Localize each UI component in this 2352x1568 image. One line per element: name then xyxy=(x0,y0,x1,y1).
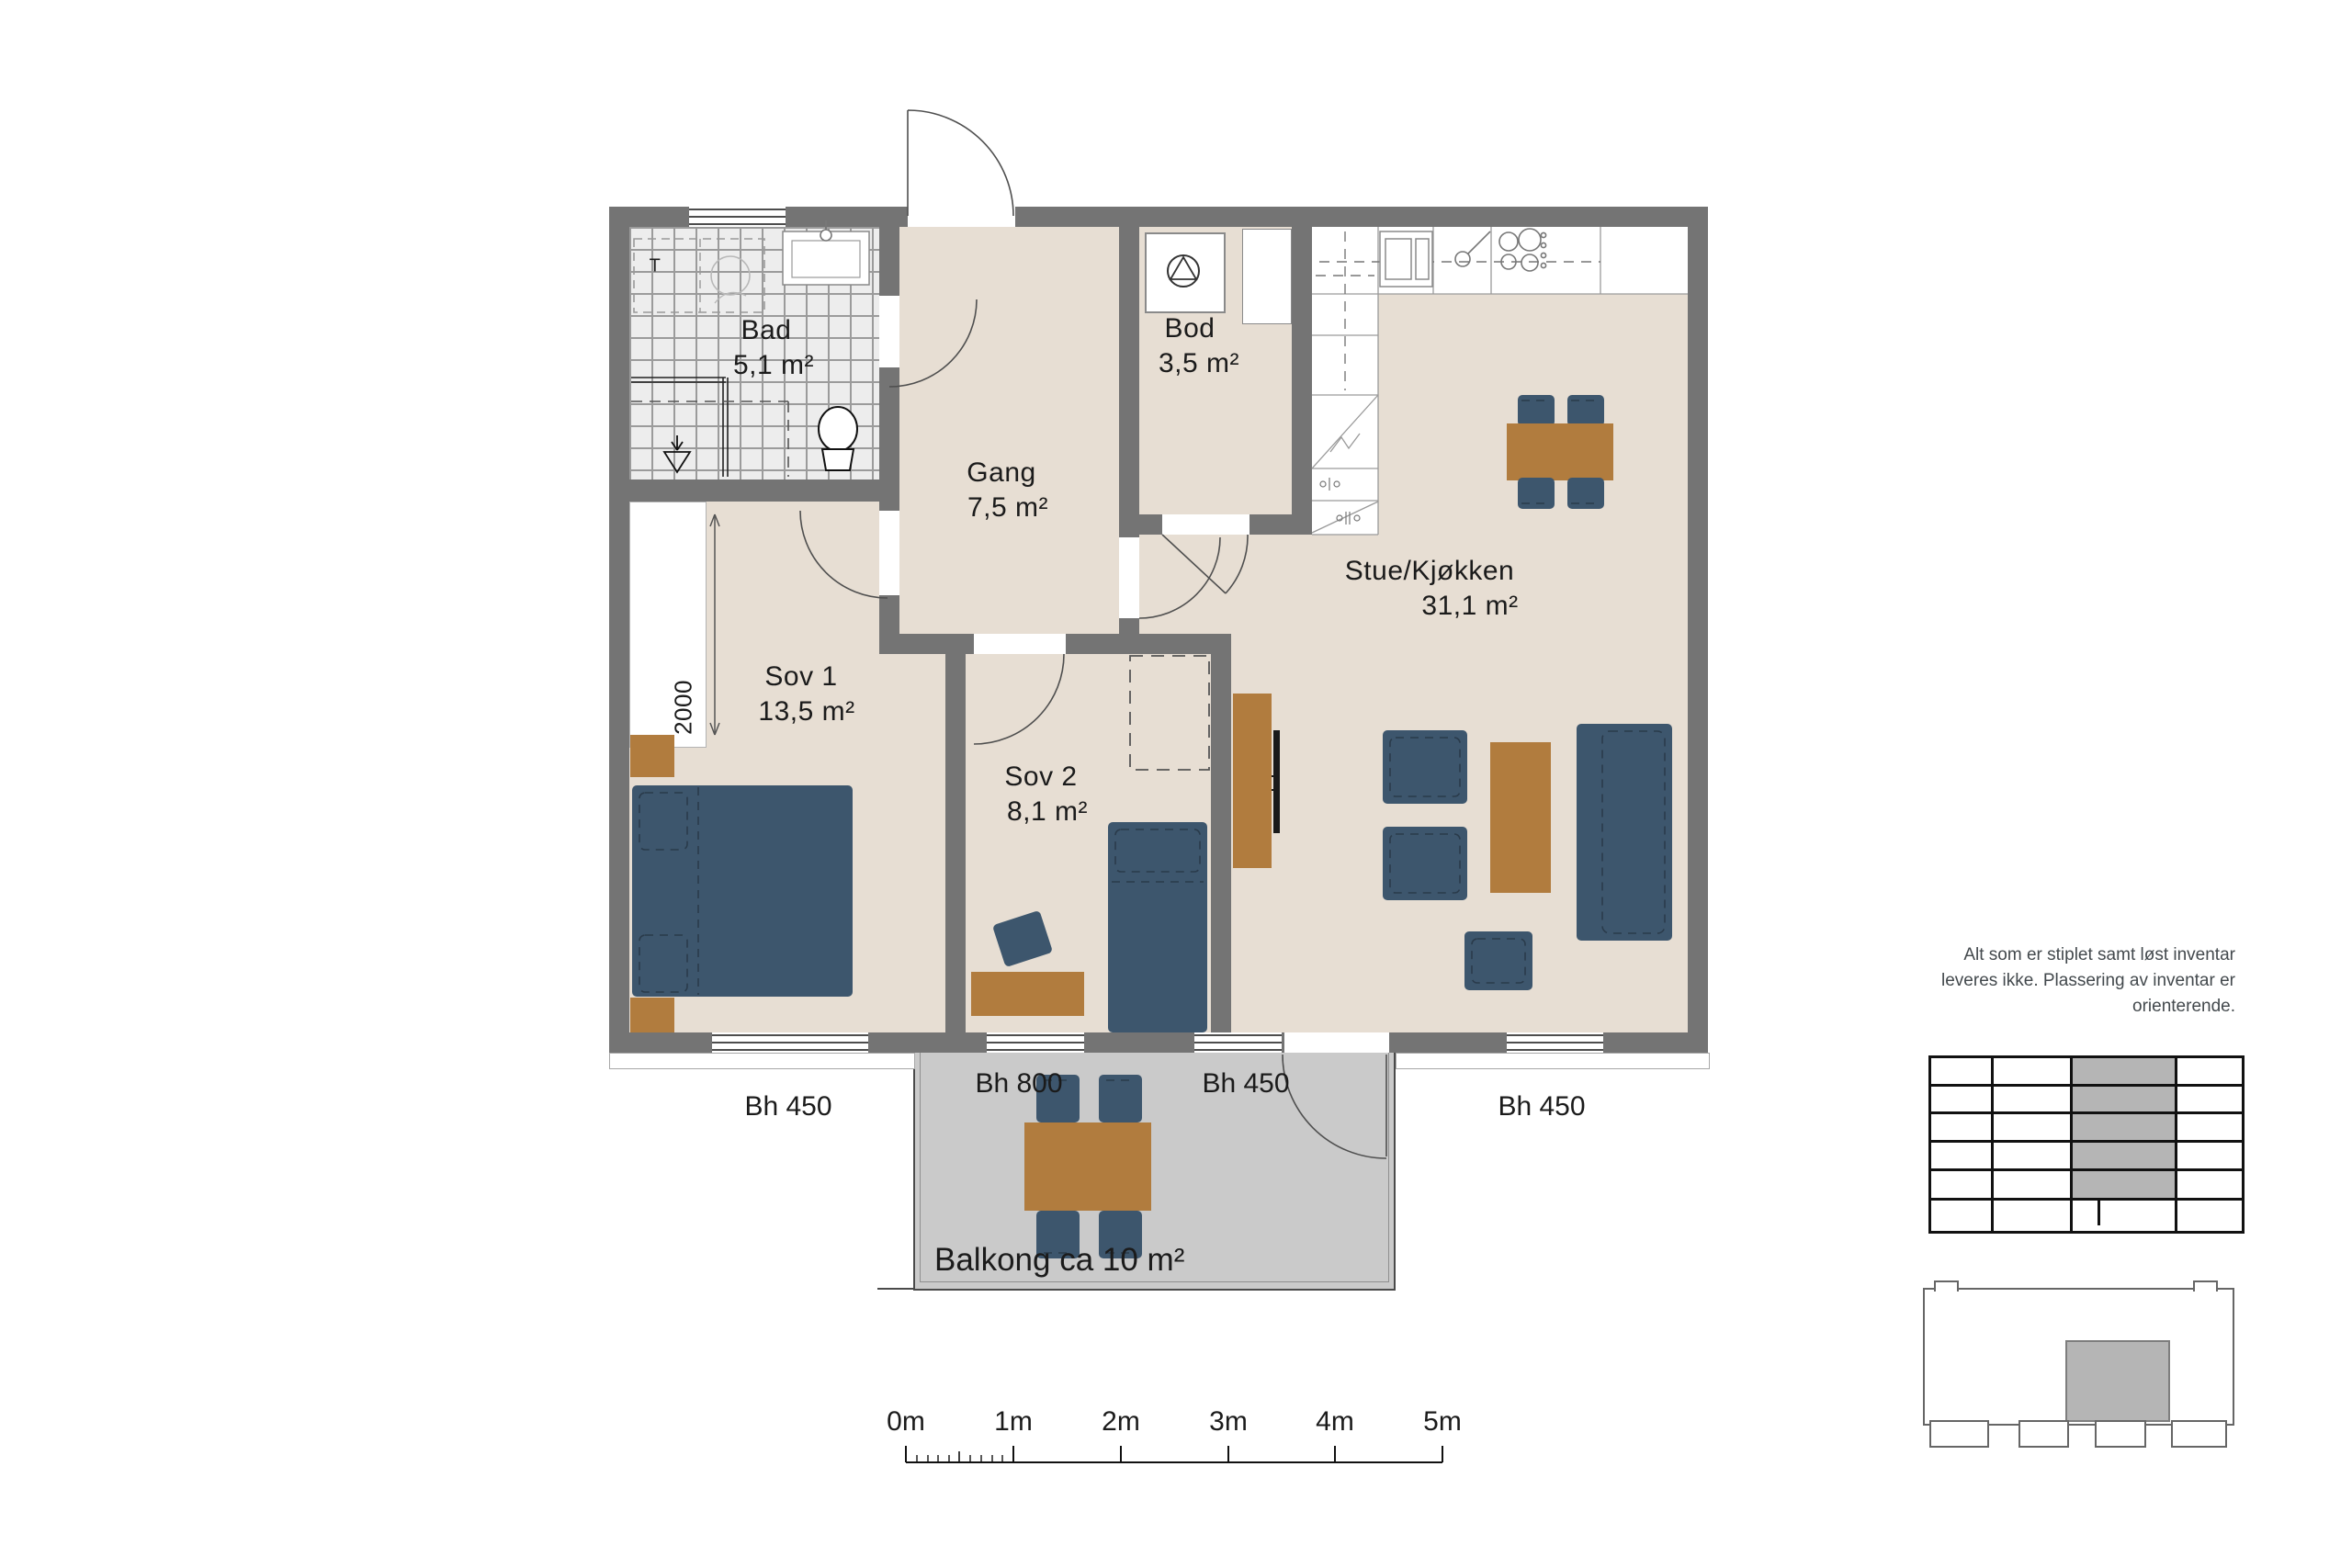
wall-sov1-sov2 xyxy=(945,654,966,1032)
sofa xyxy=(1577,724,1672,941)
scale-label-4m: 4m xyxy=(1316,1406,1354,1438)
window-stue-2 xyxy=(1507,1032,1603,1053)
key-elevation-highlight xyxy=(2070,1058,2177,1198)
washer-label: T xyxy=(650,256,661,277)
window-height-label-3: Bh 450 xyxy=(1202,1068,1289,1100)
key-plan-tab-left xyxy=(1934,1280,1959,1292)
floor-plan-canvas: Bad 5,1 m² Gang 7,5 m² Bod 3,5 m² Stue/K… xyxy=(0,0,2352,1568)
room-area-stue: 31,1 m² xyxy=(1421,591,1518,622)
wall-bod-right xyxy=(1292,227,1312,535)
key-elevation-diagram xyxy=(1928,1055,2245,1234)
room-label-bad: Bad xyxy=(741,315,792,346)
tv-bench xyxy=(1233,694,1272,868)
scale-label-5m: 5m xyxy=(1423,1406,1462,1438)
bod-cabinet xyxy=(1242,229,1292,324)
window-height-label-1: Bh 450 xyxy=(744,1091,831,1122)
balcony-chair-2 xyxy=(1099,1075,1142,1122)
window-bad xyxy=(689,207,786,227)
sov1-double-bed xyxy=(632,785,853,997)
sov2-bed xyxy=(1108,822,1207,1032)
armchair-2 xyxy=(1383,827,1467,900)
bod-door-opening xyxy=(1162,514,1249,535)
room-area-sov1: 13,5 m² xyxy=(758,696,854,728)
room-area-bad: 5,1 m² xyxy=(733,350,814,381)
dining-chair-3 xyxy=(1518,478,1555,509)
room-label-sov1: Sov 1 xyxy=(764,661,837,693)
balcony-label: Balkong ca 10 m² xyxy=(934,1242,1184,1279)
room-area-sov2: 8,1 m² xyxy=(1007,796,1088,828)
nightstand-1 xyxy=(630,735,674,777)
bath-door-opening xyxy=(879,296,899,367)
room-label-gang: Gang xyxy=(967,457,1035,489)
exterior-ledge-right xyxy=(1396,1053,1710,1069)
coffee-table xyxy=(1490,742,1551,893)
wall-right xyxy=(1688,207,1708,1053)
scale-bar xyxy=(906,1446,1442,1462)
kitchen-counter-side xyxy=(1312,227,1378,535)
disclaimer-line-3: orienterende. xyxy=(1905,994,2235,1020)
disclaimer-line-1: Alt som er stiplet samt løst inventar xyxy=(1905,942,2235,968)
sov2-desk xyxy=(971,972,1084,1016)
window-height-label-2: Bh 800 xyxy=(975,1068,1062,1100)
room-label-bod: Bod xyxy=(1165,313,1216,344)
pouf xyxy=(1464,931,1532,990)
dining-chair-2 xyxy=(1567,395,1604,426)
key-plan-balcony-3 xyxy=(2095,1420,2146,1448)
scale-label-0m: 0m xyxy=(887,1406,925,1438)
balcony-door-opening xyxy=(1284,1032,1389,1053)
window-sov1 xyxy=(712,1032,868,1053)
closet-dimension-label: 2000 xyxy=(670,680,698,735)
key-plan-balcony-4 xyxy=(2171,1420,2227,1448)
key-plan-highlight-unit xyxy=(2065,1340,2170,1422)
exterior-ledge-left xyxy=(609,1053,915,1069)
dining-chair-4 xyxy=(1567,478,1604,509)
room-area-bod: 3,5 m² xyxy=(1159,348,1239,379)
window-stue-1 xyxy=(1194,1032,1282,1053)
dining-table xyxy=(1507,423,1613,480)
entry-door-opening xyxy=(908,207,1015,227)
balcony-table xyxy=(1024,1122,1151,1211)
sov1-door-opening xyxy=(879,511,899,595)
window-height-label-4: Bh 450 xyxy=(1498,1091,1585,1122)
disclaimer-note: Alt som er stiplet samt løst inventar le… xyxy=(1905,942,2235,1020)
wall-sov2-stue xyxy=(1211,654,1231,1032)
key-plan-tab-right xyxy=(2193,1280,2218,1292)
scale-label-2m: 2m xyxy=(1102,1406,1140,1438)
disclaimer-line-2: leveres ikke. Plassering av inventar er xyxy=(1905,968,2235,994)
wall-left xyxy=(609,207,629,1053)
ventilation-unit-box xyxy=(1145,232,1226,313)
nightstand-2 xyxy=(630,998,674,1032)
room-label-sov2: Sov 2 xyxy=(1004,761,1077,793)
stue-door-opening xyxy=(1119,537,1139,618)
sov2-door-opening xyxy=(974,634,1066,654)
window-sov2 xyxy=(987,1032,1084,1053)
dining-chair-1 xyxy=(1518,395,1555,426)
scale-label-3m: 3m xyxy=(1209,1406,1248,1438)
armchair-1 xyxy=(1383,730,1467,804)
wall-bad-bottom xyxy=(609,479,899,502)
room-area-gang: 7,5 m² xyxy=(967,492,1048,524)
room-label-stue: Stue/Kjøkken xyxy=(1345,556,1514,587)
key-plan-balcony-1 xyxy=(1929,1420,1989,1448)
key-plan-balcony-2 xyxy=(2018,1420,2069,1448)
scale-label-1m: 1m xyxy=(994,1406,1033,1438)
